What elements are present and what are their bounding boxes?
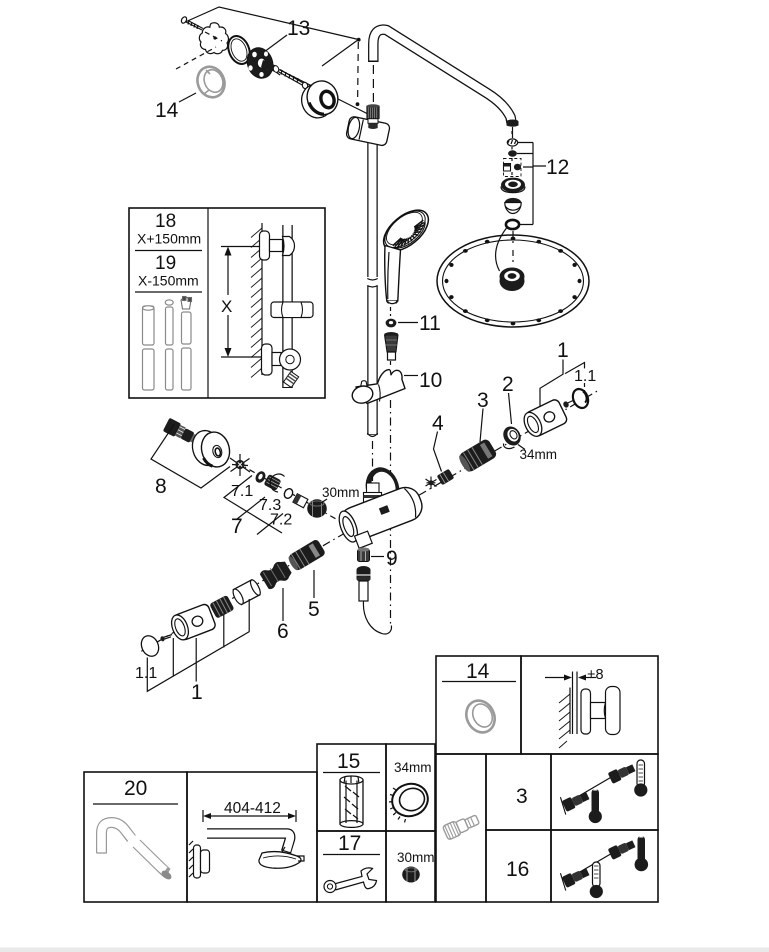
svg-text:+8: +8 [587, 667, 604, 683]
svg-text:7: 7 [231, 515, 243, 538]
svg-text:17: 17 [338, 832, 361, 855]
svg-text:404-412: 404-412 [224, 800, 281, 817]
svg-text:16: 16 [506, 858, 529, 881]
svg-text:30mm: 30mm [397, 850, 435, 865]
svg-text:X-150mm: X-150mm [138, 273, 199, 289]
svg-text:14: 14 [466, 660, 490, 683]
svg-text:12: 12 [546, 156, 569, 179]
svg-text:2: 2 [502, 373, 514, 396]
svg-text:11: 11 [419, 312, 441, 335]
svg-text:3: 3 [477, 389, 489, 412]
svg-text:X+150mm: X+150mm [137, 231, 201, 247]
svg-text:14: 14 [155, 99, 179, 122]
svg-text:X: X [221, 297, 232, 316]
svg-text:6: 6 [277, 620, 289, 643]
svg-text:7.1: 7.1 [231, 483, 253, 500]
svg-text:4: 4 [432, 412, 444, 435]
svg-text:18: 18 [155, 211, 176, 232]
svg-text:5: 5 [308, 598, 320, 621]
svg-text:34mm: 34mm [394, 760, 432, 775]
svg-text:1: 1 [557, 339, 569, 362]
svg-text:7.2: 7.2 [270, 512, 292, 529]
svg-text:1: 1 [191, 681, 203, 704]
svg-text:3: 3 [516, 785, 528, 808]
svg-text:13: 13 [287, 17, 310, 40]
svg-text:30mm: 30mm [322, 485, 360, 500]
svg-text:19: 19 [155, 253, 176, 274]
svg-text:10: 10 [419, 369, 442, 392]
svg-text:1.1: 1.1 [135, 665, 157, 682]
svg-text:8: 8 [155, 475, 167, 498]
svg-text:20: 20 [124, 777, 147, 800]
svg-text:9: 9 [386, 547, 398, 570]
svg-text:1.1: 1.1 [574, 368, 596, 385]
svg-text:15: 15 [337, 750, 360, 773]
